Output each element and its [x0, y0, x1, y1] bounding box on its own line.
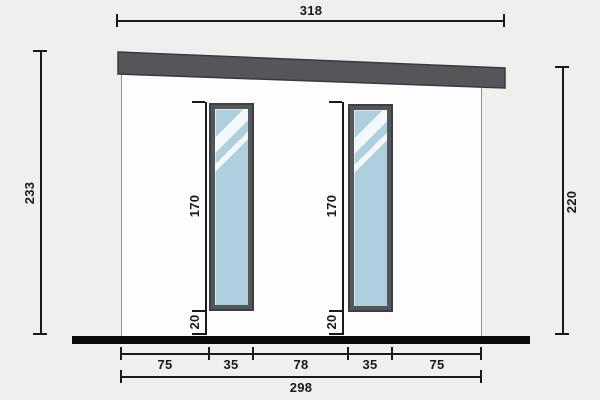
- left-height-dimension-label: 233: [22, 163, 38, 223]
- wall: [121, 70, 482, 336]
- dimension-tick: [120, 347, 122, 360]
- dimension-tick: [555, 66, 569, 68]
- dimension-tick: [480, 347, 482, 360]
- ground-line: [72, 336, 530, 344]
- dimension-tick: [480, 370, 482, 383]
- roof-width-dimension-label: 318: [281, 3, 341, 19]
- roof-width-dimension-line: [117, 20, 505, 22]
- dimension-tick: [116, 14, 118, 27]
- segment-label-3: 78: [271, 357, 331, 373]
- window-right: [348, 104, 393, 312]
- window-left-height-label: 170: [187, 176, 203, 236]
- dimension-tick: [33, 333, 47, 335]
- base-width-dimension-line: [121, 376, 482, 378]
- left-height-dimension-line: [40, 51, 42, 335]
- window-right-glass: [354, 110, 387, 306]
- window-left-dimension-line: [205, 102, 207, 335]
- window-left: [209, 103, 254, 311]
- dimension-tick: [503, 14, 505, 27]
- dimension-tick: [555, 333, 569, 335]
- window-right-height-label: 170: [324, 176, 340, 236]
- glass-reflection: [354, 110, 387, 188]
- right-height-dimension-line: [562, 67, 564, 335]
- right-height-dimension-label: 220: [564, 172, 580, 232]
- bottom-segments-dimension-line: [121, 353, 482, 355]
- segment-label-5: 75: [407, 357, 467, 373]
- elevation-diagram: 318 233 220 170 20 170 20: [0, 0, 600, 400]
- dimension-tick: [192, 101, 205, 103]
- dimension-tick: [33, 50, 47, 52]
- dimension-tick: [329, 101, 342, 103]
- window-right-dimension-line: [342, 102, 344, 335]
- segment-label-2: 35: [201, 357, 261, 373]
- segment-label-1: 75: [135, 357, 195, 373]
- segment-label-4: 35: [340, 357, 400, 373]
- dimension-tick: [120, 370, 122, 383]
- window-left-glass: [215, 109, 248, 305]
- base-width-label: 298: [271, 380, 331, 396]
- glass-reflection: [215, 109, 248, 187]
